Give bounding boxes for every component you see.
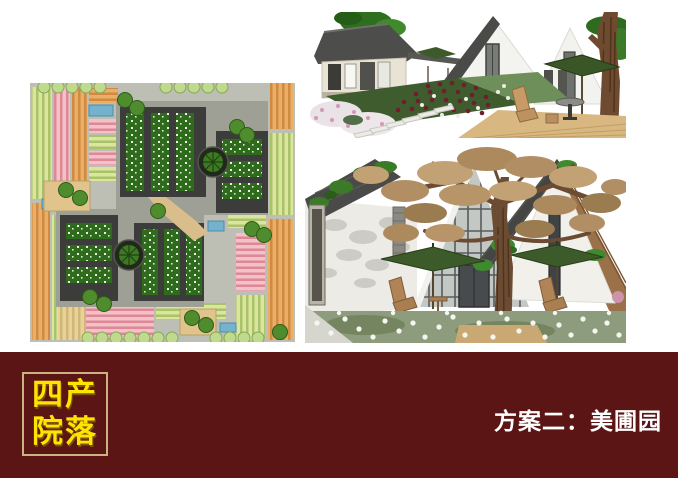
building-cluster-north	[116, 101, 268, 215]
wood-stool	[546, 114, 558, 123]
pink-flowers	[612, 291, 624, 303]
pond	[89, 105, 113, 116]
render-top-figure	[308, 12, 626, 138]
logo-line-2: 院落	[32, 414, 98, 451]
aframe-rendering	[305, 147, 626, 343]
logo-box: 四产 院落	[22, 372, 108, 456]
site-plan-figure	[30, 83, 295, 342]
site-plan-illustration	[30, 83, 295, 342]
courtyard-rendering	[308, 12, 626, 138]
scheme-title: 方案二：美圃园	[494, 402, 662, 436]
pond	[220, 323, 236, 332]
logo-line-1: 四产	[32, 377, 98, 414]
ground-patch	[455, 325, 547, 343]
footer-banner: 四产 院落 方案二：美圃园	[0, 352, 678, 478]
pond	[208, 221, 224, 231]
render-bottom-figure	[305, 147, 626, 343]
side-table	[429, 297, 447, 301]
presentation-slide: 四产 院落 方案二：美圃园	[0, 0, 678, 478]
